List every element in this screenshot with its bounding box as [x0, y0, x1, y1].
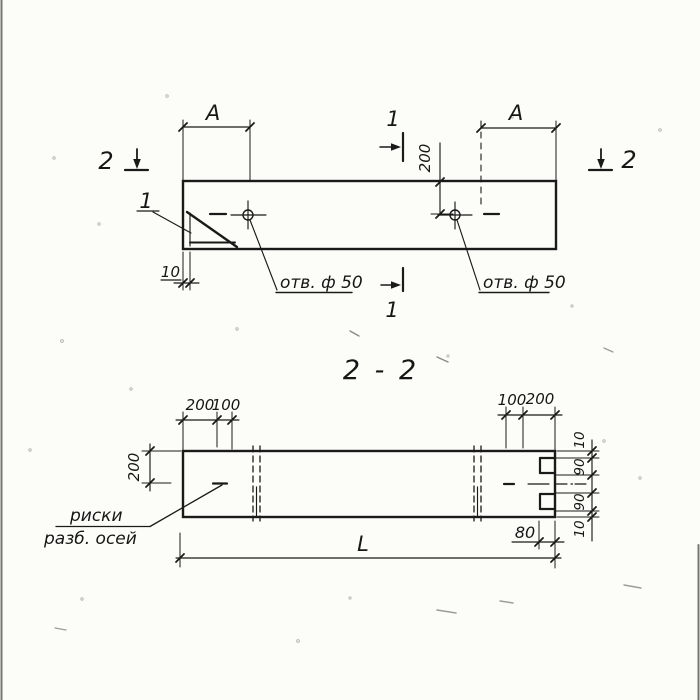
dim-tr-100: 100	[498, 391, 527, 409]
dim-height-left: 200	[125, 444, 181, 491]
dim-200-plan-label: 200	[416, 144, 434, 173]
detail-mark-label: 1	[139, 189, 152, 213]
dim-right-90-bottom: 90	[572, 493, 588, 510]
dim-a-right: А	[477, 101, 560, 205]
section-marker-1-bottom-label: 1	[385, 298, 398, 322]
dim-right-10-top: 10	[572, 431, 588, 448]
plan-view: 1 отв. ф 50 отв. ф 50	[98, 101, 636, 322]
blueprint-scan: 1 отв. ф 50 отв. ф 50	[0, 0, 700, 700]
hole-label-left: отв. ф 50	[280, 273, 363, 293]
riska-note-line1: риски	[69, 506, 123, 526]
section-marker-2-left-label: 2	[98, 147, 113, 175]
dim-top-right: 100 200	[498, 390, 562, 451]
section-centerline	[213, 484, 586, 485]
dim-10-plan: 10	[161, 252, 199, 290]
section-view: 2 - 2	[43, 355, 599, 568]
dim-right-90-top: 90	[572, 458, 588, 475]
section-title: 2 - 2	[343, 355, 419, 386]
end-notch-bottom	[540, 494, 554, 509]
section-marker-2-left: 2	[98, 147, 148, 175]
section-beam-outline	[183, 451, 555, 517]
dim-right-10-bottom: 10	[572, 520, 588, 537]
scan-artifacts	[2, 0, 699, 700]
section-marker-2-right: 2	[589, 146, 637, 174]
end-notch-top	[540, 458, 554, 473]
dim-a-left-label: А	[204, 101, 220, 125]
hole-label-right: отв. ф 50	[483, 273, 566, 293]
dim-height-200: 200	[125, 453, 143, 482]
section-marker-1-bottom: 1	[381, 268, 403, 322]
hole-callout-right: отв. ф 50	[457, 220, 566, 293]
dim-80-label: 80	[515, 523, 535, 542]
hole-callout-left: отв. ф 50	[250, 220, 363, 293]
dim-80: 80	[512, 521, 564, 568]
dim-tl-100: 100	[212, 396, 241, 414]
drawing-canvas: 1 отв. ф 50 отв. ф 50	[0, 0, 700, 700]
dim-a-right-label: А	[507, 101, 523, 125]
dim-top-left: 200 100	[176, 396, 240, 451]
dim-tr-200: 200	[526, 390, 555, 408]
riska-note-line2: разб. осей	[43, 529, 137, 549]
dim-right-stack: 10 90 90 10	[556, 431, 599, 541]
dim-tl-200: 200	[186, 396, 215, 414]
section-marker-1-top-label: 1	[386, 107, 399, 131]
section-marker-1-top: 1	[380, 107, 403, 161]
hidden-hole-right	[474, 446, 481, 521]
section-marker-2-right-label: 2	[621, 146, 636, 174]
dim-length: L	[176, 532, 561, 567]
dim-10-plan-label: 10	[161, 263, 180, 281]
hole-left	[210, 201, 266, 229]
dim-length-label: L	[357, 532, 369, 556]
dim-a-left: А	[179, 101, 254, 181]
hole-right	[438, 202, 499, 229]
hidden-hole-left	[253, 446, 260, 521]
corner-chamfer-detail	[187, 212, 237, 247]
